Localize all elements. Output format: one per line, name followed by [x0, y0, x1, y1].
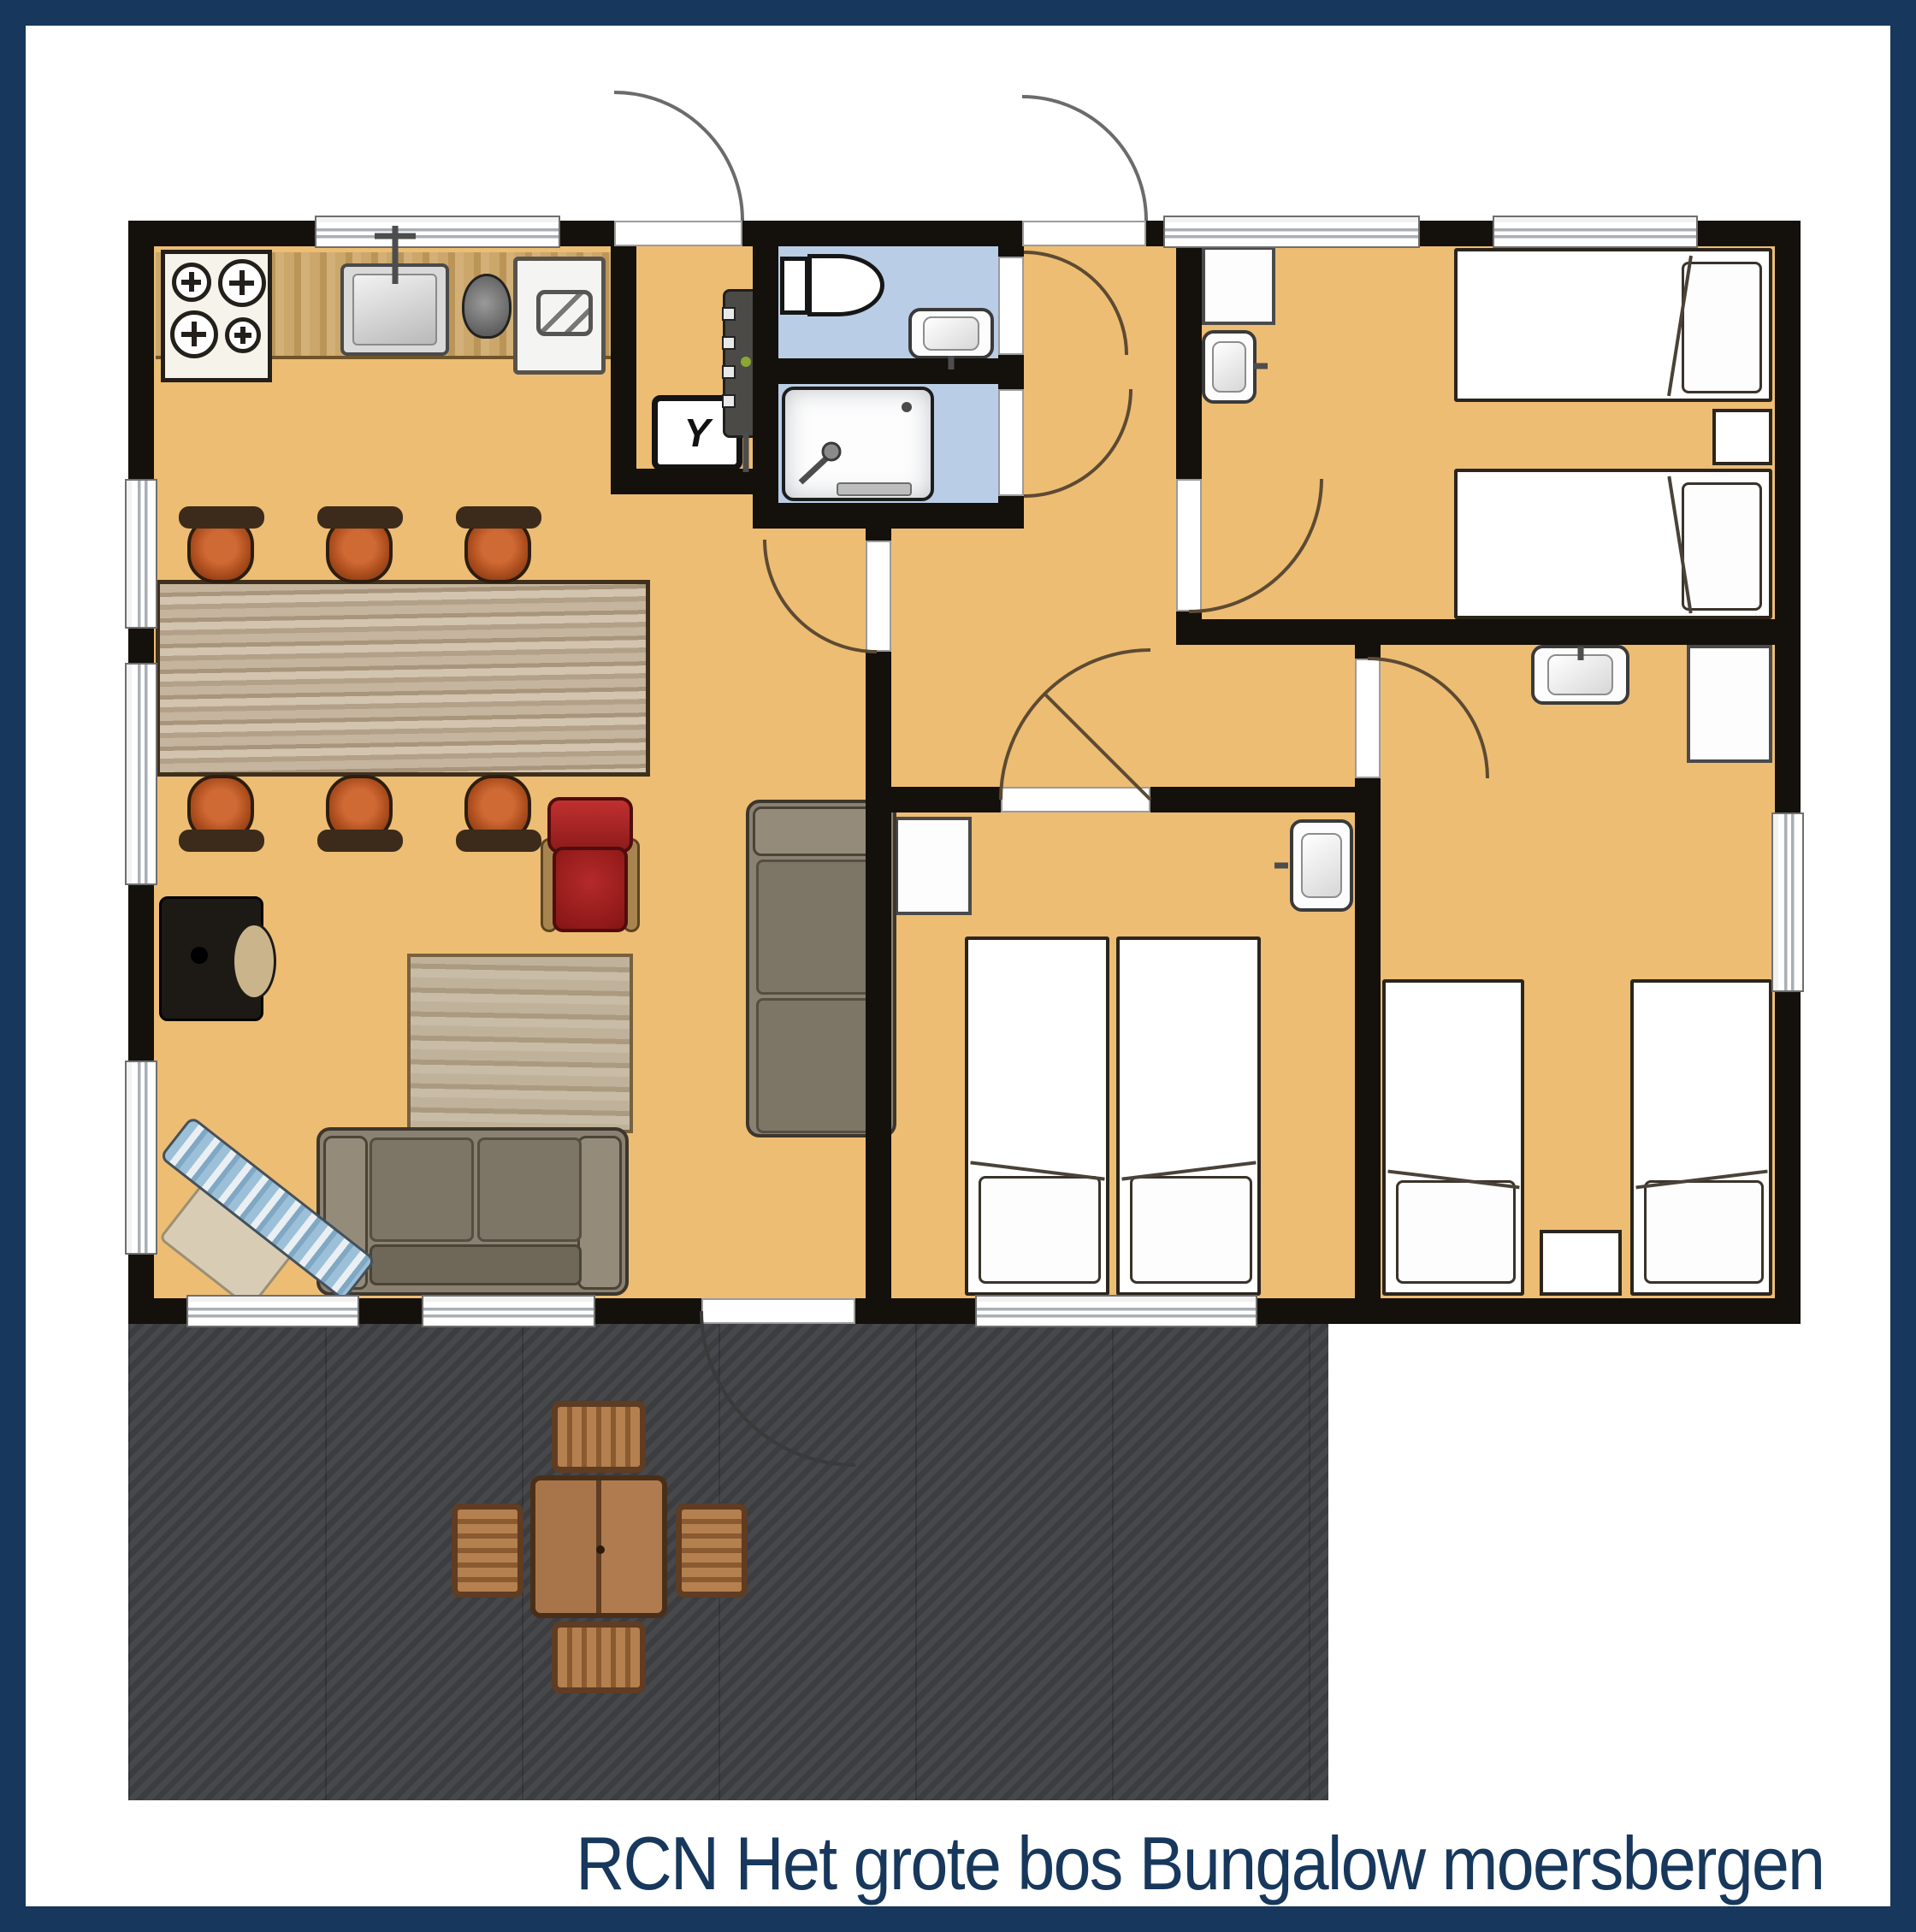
burner-icon	[225, 317, 261, 353]
front-door	[614, 221, 742, 246]
toilet-room-sink	[908, 308, 994, 359]
closet-middle-bedroom	[895, 817, 972, 915]
wall-bath-divider	[778, 358, 998, 384]
middle-bedroom-door	[1001, 787, 1150, 812]
lounge-chair	[163, 1137, 368, 1291]
bed	[1454, 469, 1772, 619]
outdoor-table	[530, 1475, 667, 1618]
pillow	[1682, 482, 1762, 611]
wall-hall-left	[611, 246, 636, 479]
pillow	[1130, 1176, 1252, 1284]
table-center	[596, 1545, 605, 1554]
plan-title: RCN Het grote bos Bungalow moersbergen	[576, 1820, 1824, 1907]
wall-bath-bottom	[753, 503, 1024, 529]
closet-bottom-right-bedroom	[1687, 645, 1772, 763]
dining-chair	[464, 775, 531, 842]
shower-tray	[782, 387, 934, 501]
dining-table	[156, 580, 650, 777]
wood-stove	[159, 896, 263, 1021]
window-left-2	[125, 663, 157, 885]
outdoor-chair	[552, 1622, 646, 1693]
bed	[1116, 936, 1261, 1296]
chair-seat	[553, 847, 628, 932]
nightstand	[1712, 409, 1772, 465]
boiler-knob	[722, 394, 736, 408]
hall-door-arc	[1022, 97, 1146, 221]
closet-top-right-bedroom	[1202, 246, 1275, 325]
burner-icon	[172, 263, 211, 302]
boiler-knob	[722, 365, 736, 379]
window-bottomright-bedroom	[1771, 812, 1804, 992]
sink-basin	[923, 316, 979, 351]
topright-bedroom-door	[1176, 479, 1202, 612]
window-left-3	[125, 1061, 157, 1255]
sofa-back	[370, 1244, 582, 1285]
dining-chair	[187, 775, 254, 842]
window-topright-2	[1493, 216, 1698, 248]
sink-basin	[352, 274, 437, 346]
bottomright-bedroom-door	[1355, 659, 1381, 778]
dining-chair	[326, 517, 393, 583]
chair-back	[547, 797, 633, 854]
outdoor-chair	[552, 1401, 646, 1473]
sink-top-right-bedroom	[1202, 330, 1257, 404]
window-kitchen	[315, 216, 560, 248]
living-room-door	[866, 541, 891, 652]
coffee-table	[407, 954, 633, 1133]
sink-basin	[1301, 833, 1342, 898]
stove	[161, 250, 272, 382]
red-armchair	[541, 797, 640, 934]
dining-chair	[187, 517, 254, 583]
window-topright-1	[1163, 216, 1420, 248]
terrace-door	[701, 1298, 855, 1324]
hall-back-door	[1022, 221, 1146, 246]
burner-icon	[170, 310, 218, 358]
stove-door	[232, 923, 276, 1000]
bed	[1454, 248, 1772, 402]
sofa-cushion	[370, 1137, 474, 1242]
toilet-door	[998, 257, 1024, 355]
pillow	[979, 1176, 1101, 1284]
shower-drain	[902, 402, 912, 412]
outdoor-chair	[452, 1504, 523, 1598]
stove-handle	[191, 947, 208, 964]
pillow	[1682, 262, 1762, 393]
shower-door	[998, 389, 1024, 496]
toilet-tank	[780, 257, 809, 315]
sink-middle-bedroom	[1290, 819, 1353, 912]
wall-bath-left	[753, 246, 778, 529]
front-door-arc	[614, 92, 742, 221]
pillow	[1396, 1180, 1516, 1284]
nightstand	[1540, 1230, 1622, 1296]
dishwasher-icon	[536, 290, 593, 336]
boiler-light	[741, 357, 751, 367]
outdoor-chair	[676, 1504, 748, 1598]
sink-basin	[1212, 341, 1246, 392]
wall-right	[1775, 221, 1801, 1324]
sink-bottom-right-bedroom	[1531, 645, 1629, 705]
floor-plan-page: Y	[0, 0, 1916, 1932]
kettle	[462, 274, 512, 339]
window-living-bottom-1	[186, 1295, 359, 1327]
bed	[965, 936, 1109, 1296]
wall-bottom	[128, 1298, 1801, 1324]
shower-threshold	[837, 482, 912, 496]
dining-chair	[326, 775, 393, 842]
boiler-knob	[722, 307, 736, 321]
boiler-knob	[722, 336, 736, 350]
bed	[1382, 979, 1524, 1296]
wall-topright-bedroom-bottom	[1176, 619, 1801, 645]
window-middle-bedroom	[975, 1295, 1257, 1327]
sink-basin	[1547, 654, 1613, 694]
bed	[1630, 979, 1772, 1296]
window-left-1	[125, 479, 157, 629]
sofa-cushion	[477, 1137, 582, 1242]
dining-chair	[464, 517, 531, 583]
dishwasher	[513, 257, 606, 375]
meter-symbol: Y	[684, 410, 711, 456]
pillow	[1644, 1180, 1764, 1284]
window-living-bottom-2	[422, 1295, 595, 1327]
sofa-armrest	[577, 1136, 622, 1290]
kitchen-sink	[340, 263, 449, 356]
burner-icon	[218, 259, 266, 307]
